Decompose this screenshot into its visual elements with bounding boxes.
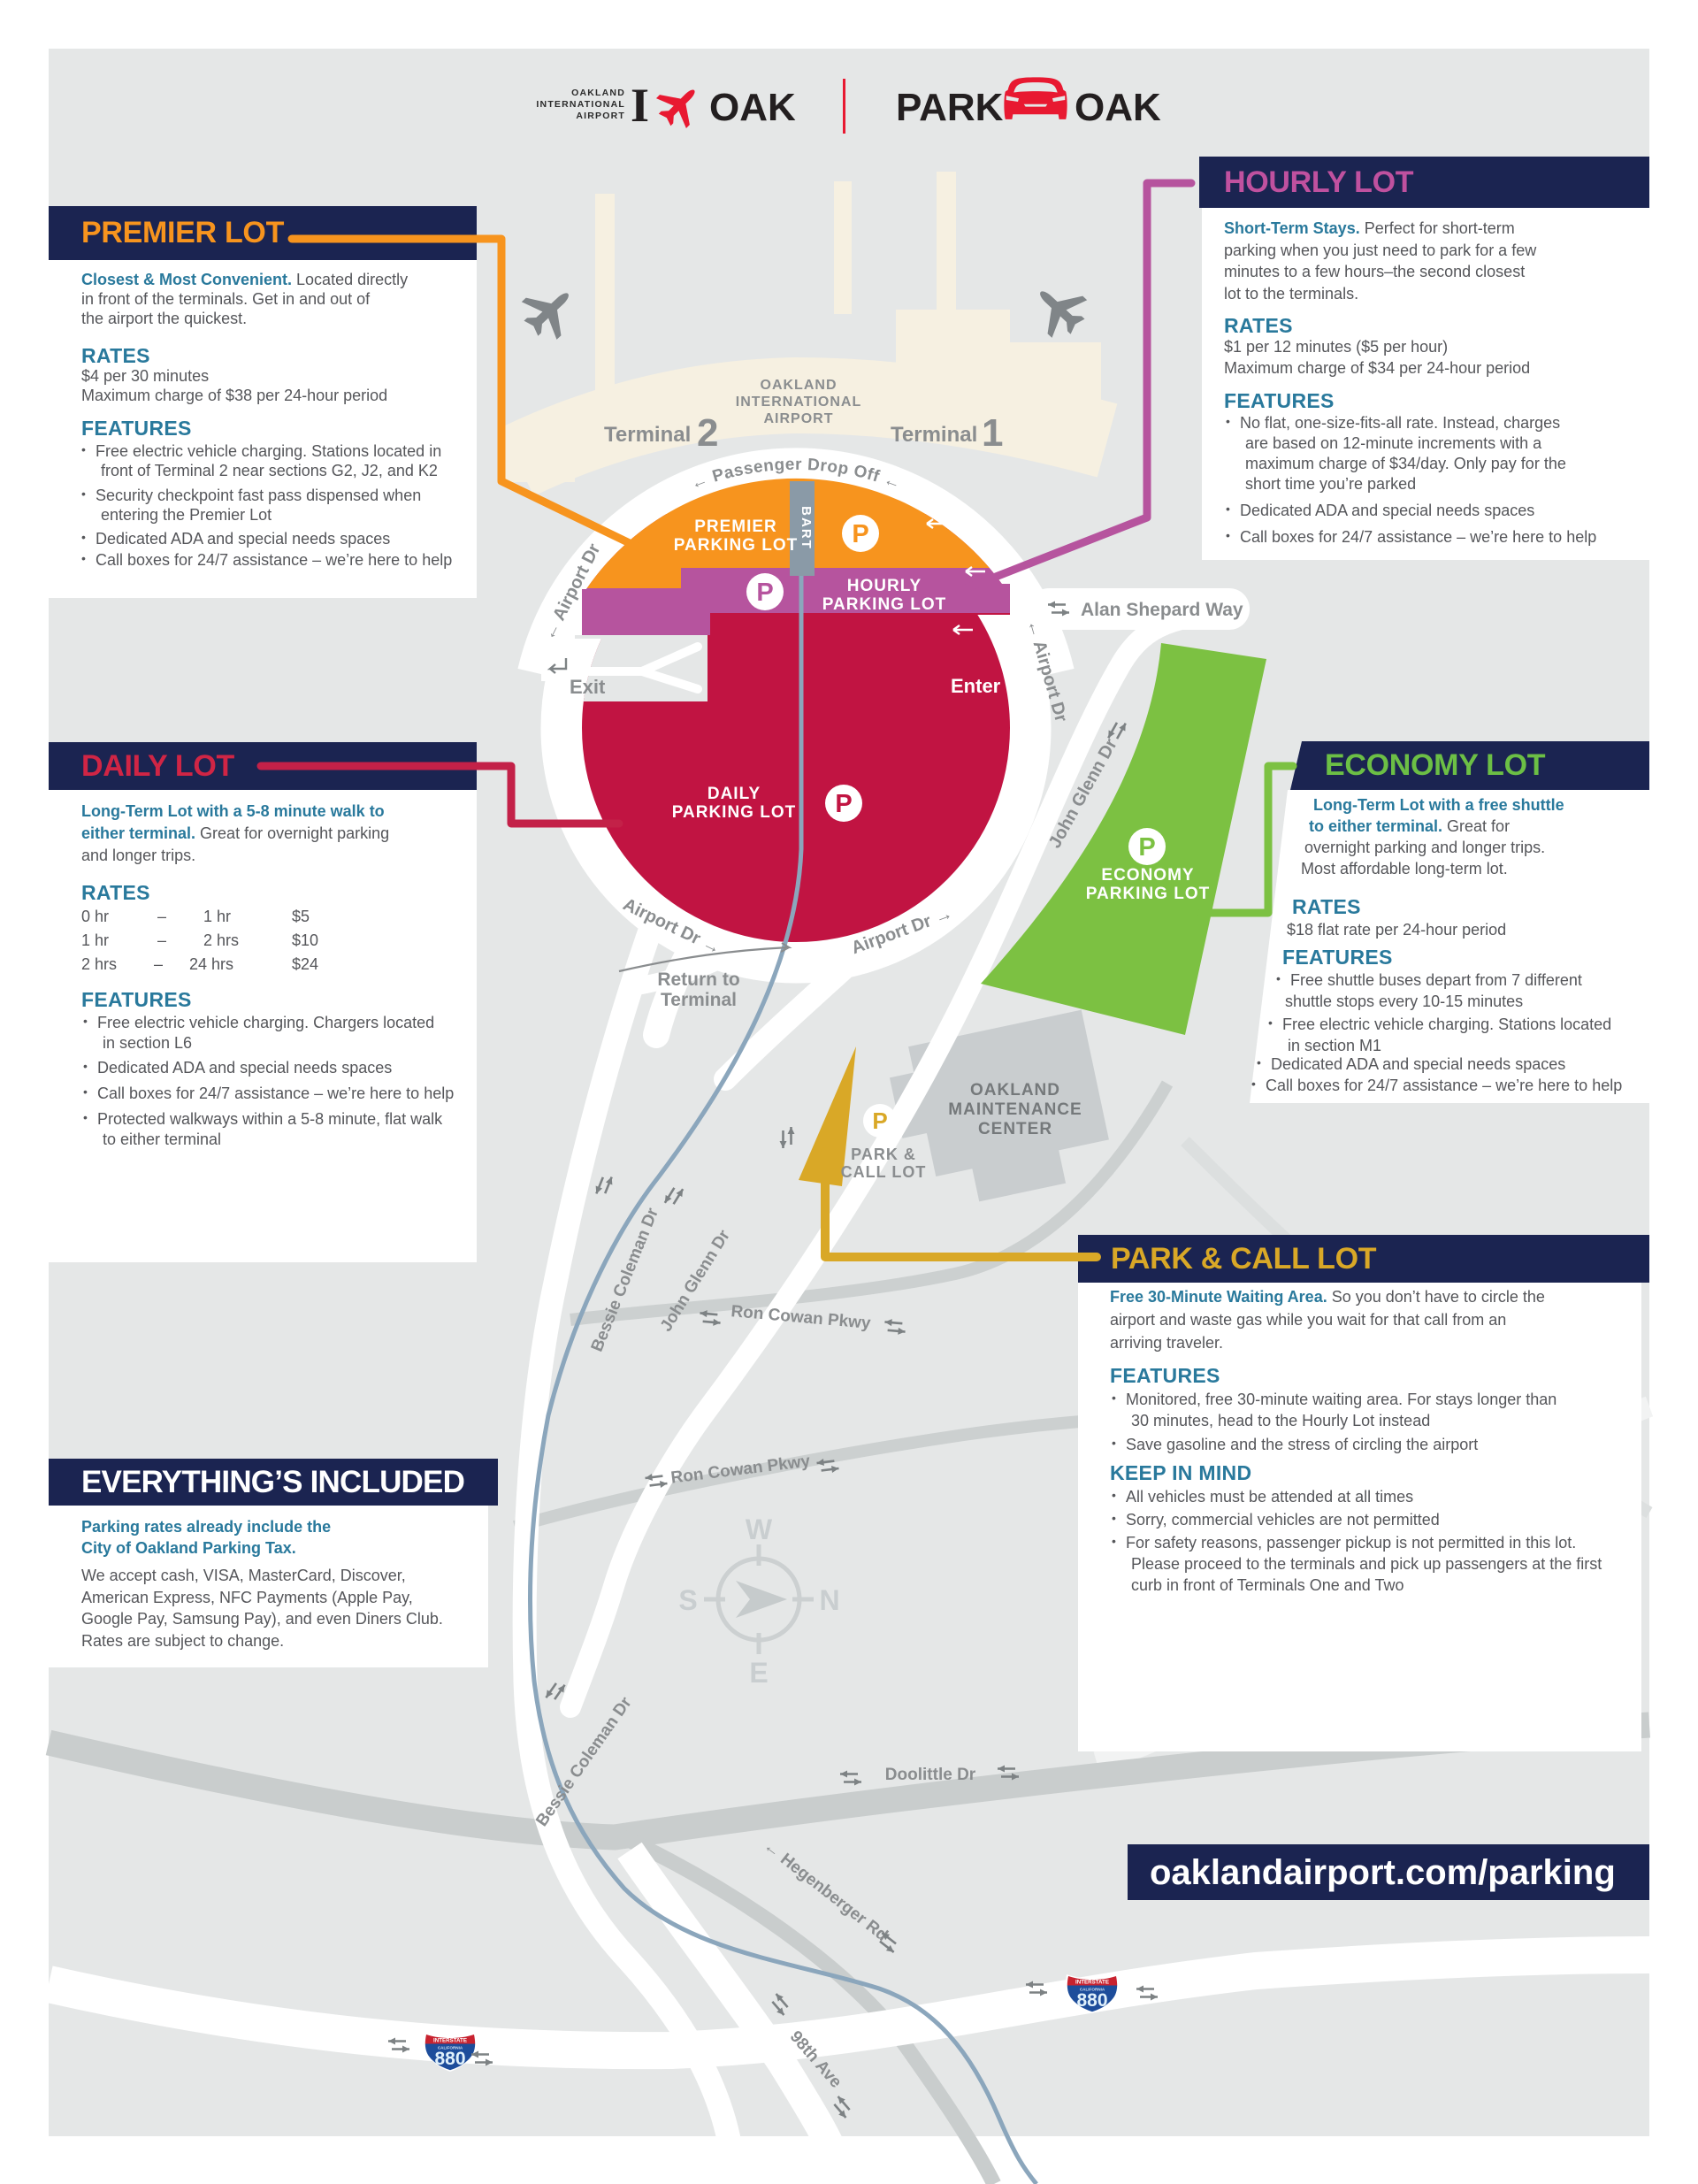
svg-text:CENTER: CENTER [978, 1120, 1052, 1138]
svg-text:N: N [819, 1584, 839, 1616]
svg-text:Doolittle Dr: Doolittle Dr [885, 1766, 976, 1784]
svg-text:PREMIER: PREMIER [694, 517, 777, 536]
svg-text:OAKLAND: OAKLAND [571, 88, 625, 98]
svg-text:OAK: OAK [1075, 86, 1161, 129]
svg-text:CALL LOT: CALL LOT [841, 1163, 927, 1181]
svg-text:OAKLAND: OAKLAND [970, 1081, 1060, 1100]
svg-text:MAINTENANCE: MAINTENANCE [948, 1100, 1082, 1119]
svg-text:P: P [852, 520, 868, 548]
svg-text:INTERNATIONAL: INTERNATIONAL [736, 395, 861, 410]
svg-text:I: I [631, 79, 649, 132]
svg-text:S: S [678, 1584, 697, 1616]
svg-text:PARKING LOT: PARKING LOT [672, 803, 796, 822]
svg-text:PARKING LOT: PARKING LOT [822, 595, 946, 614]
svg-text:ECONOMY: ECONOMY [1101, 866, 1194, 885]
svg-text:oaklandairport.com/parking: oaklandairport.com/parking [1150, 1853, 1616, 1892]
svg-text:INTERNATIONAL: INTERNATIONAL [536, 99, 625, 110]
svg-text:OAKLAND: OAKLAND [761, 378, 838, 393]
svg-text:PARK: PARK [896, 86, 1004, 129]
svg-text:E: E [749, 1657, 768, 1689]
svg-text:Terminal: Terminal [661, 990, 737, 1010]
svg-text:W: W [746, 1513, 773, 1545]
svg-text:P: P [1138, 833, 1155, 862]
svg-text:P: P [835, 790, 852, 818]
svg-text:AIRPORT: AIRPORT [576, 111, 625, 121]
svg-text:2: 2 [697, 411, 718, 455]
svg-text:Exit: Exit [570, 676, 606, 698]
svg-text:PARKING LOT: PARKING LOT [1086, 885, 1210, 903]
svg-text:1: 1 [982, 411, 1003, 455]
svg-text:OAK: OAK [709, 86, 796, 129]
svg-text:PARK &: PARK & [851, 1146, 916, 1163]
svg-text:BART: BART [799, 506, 814, 550]
svg-text:Enter: Enter [951, 675, 1001, 697]
svg-text:Terminal: Terminal [604, 423, 691, 447]
svg-text:AIRPORT: AIRPORT [764, 411, 834, 426]
svg-text:Alan Shepard Way: Alan Shepard Way [1081, 600, 1243, 620]
svg-text:PARKING LOT: PARKING LOT [674, 536, 798, 555]
svg-text:Return to: Return to [657, 969, 739, 990]
svg-text:DAILY: DAILY [707, 785, 761, 803]
svg-text:HOURLY: HOURLY [847, 577, 922, 595]
svg-text:P: P [872, 1107, 887, 1134]
svg-text:P: P [756, 579, 773, 607]
svg-text:Terminal: Terminal [891, 423, 977, 447]
